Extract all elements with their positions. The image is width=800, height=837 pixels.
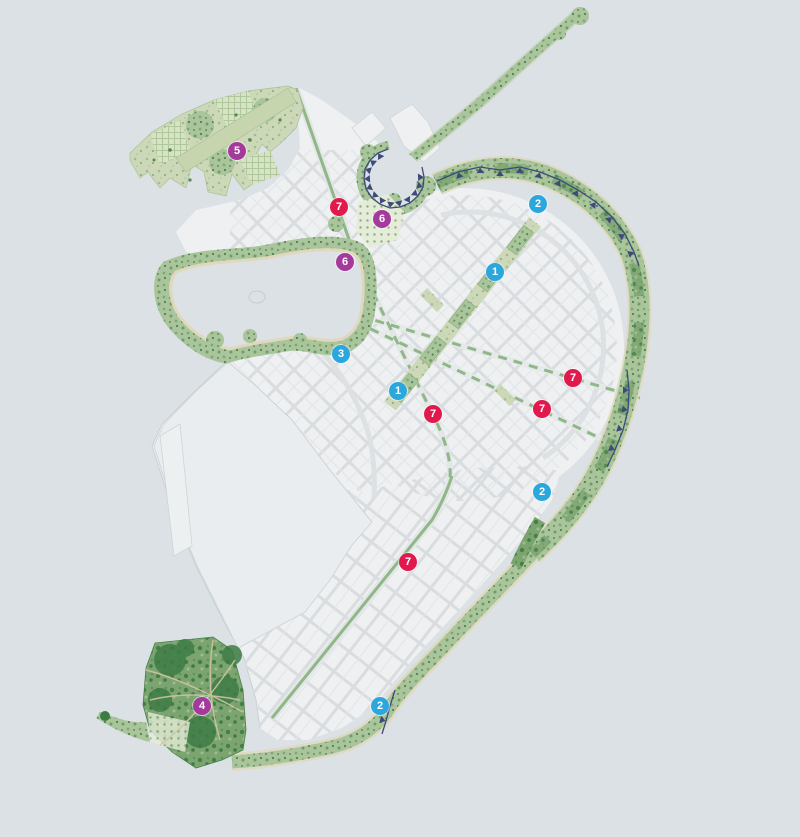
- map-marker-2[interactable]: 2: [529, 195, 547, 213]
- map-marker-5[interactable]: 5: [228, 142, 246, 160]
- map-marker-7[interactable]: 7: [564, 369, 582, 387]
- map-marker-3[interactable]: 3: [332, 345, 350, 363]
- map-marker-6[interactable]: 6: [373, 210, 391, 228]
- map-marker-6[interactable]: 6: [336, 253, 354, 271]
- map-marker-4[interactable]: 4: [193, 697, 211, 715]
- map-marker-2[interactable]: 2: [533, 483, 551, 501]
- map-marker-2[interactable]: 2: [371, 697, 389, 715]
- map-marker-7[interactable]: 7: [424, 405, 442, 423]
- masterplan-map: 576261317772742: [0, 0, 800, 837]
- marker-layer: 576261317772742: [0, 0, 800, 837]
- map-marker-1[interactable]: 1: [389, 382, 407, 400]
- map-marker-7[interactable]: 7: [399, 553, 417, 571]
- map-marker-7[interactable]: 7: [533, 400, 551, 418]
- map-marker-7[interactable]: 7: [330, 198, 348, 216]
- map-marker-1[interactable]: 1: [486, 263, 504, 281]
